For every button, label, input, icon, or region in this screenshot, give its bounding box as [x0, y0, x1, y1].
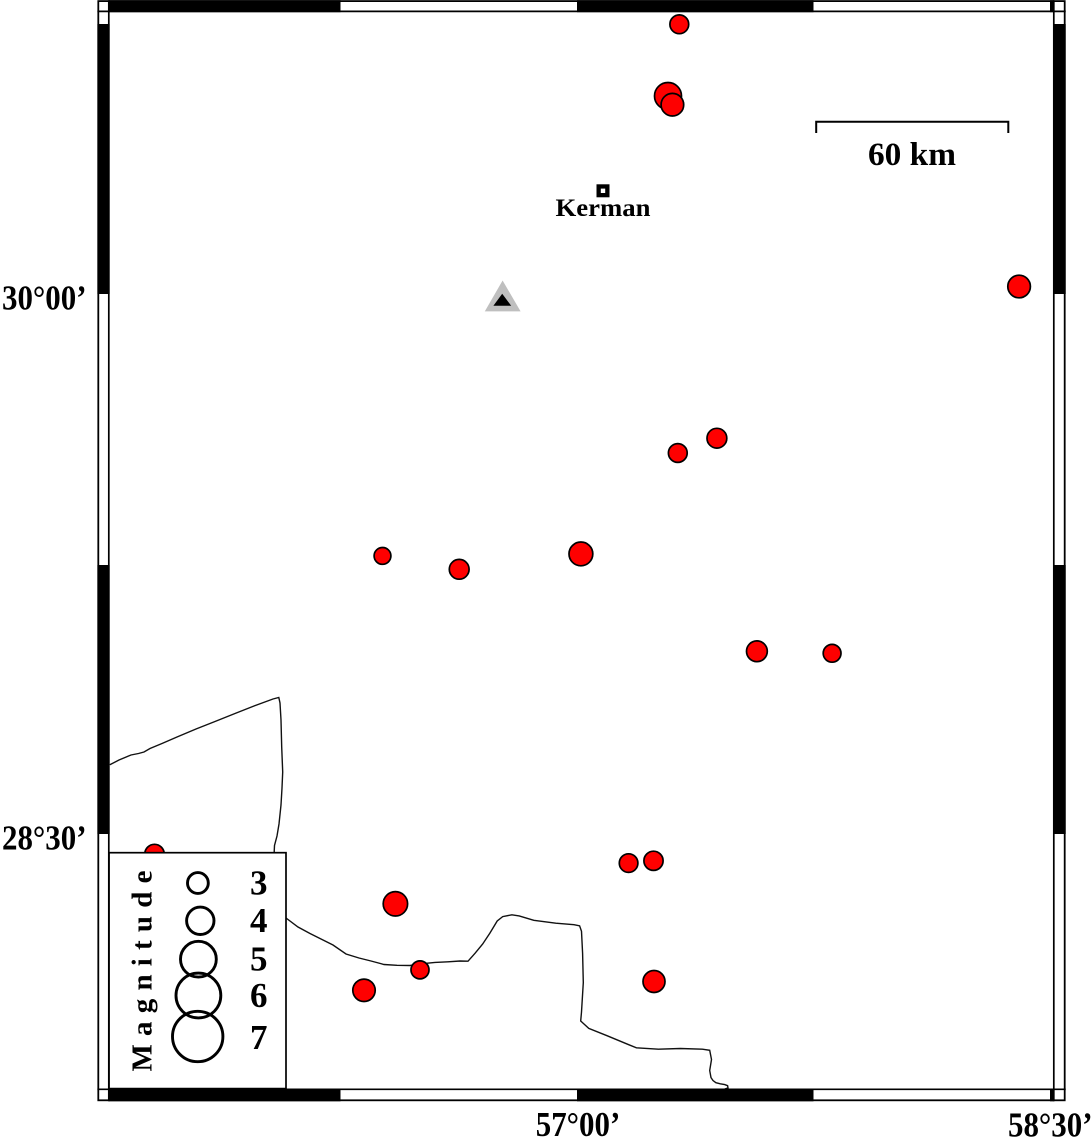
svg-text:28°30’: 28°30’: [2, 819, 87, 858]
svg-text:60 km: 60 km: [868, 137, 956, 173]
svg-text:4: 4: [250, 901, 268, 940]
svg-text:6: 6: [250, 976, 268, 1015]
svg-text:30°00’: 30°00’: [2, 279, 87, 318]
svg-text:58°30’: 58°30’: [1008, 1106, 1092, 1138]
svg-text:7: 7: [250, 1018, 268, 1057]
svg-text:57°00’: 57°00’: [536, 1105, 621, 1138]
svg-text:5: 5: [250, 939, 268, 978]
svg-text:Kerman: Kerman: [556, 195, 651, 222]
svg-text:3: 3: [250, 863, 268, 902]
